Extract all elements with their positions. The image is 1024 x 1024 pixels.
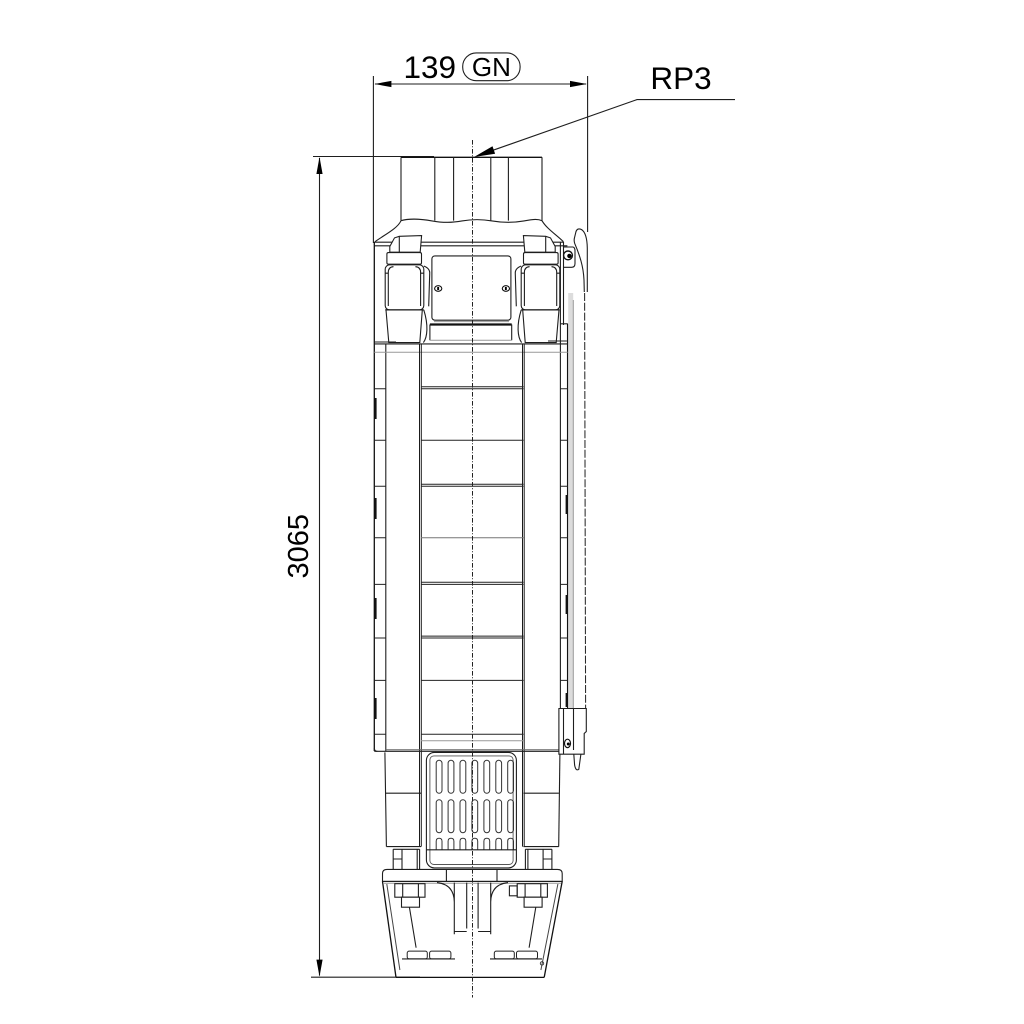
svg-text:3065: 3065: [283, 514, 315, 579]
svg-text:139: 139: [404, 49, 457, 85]
svg-text:GN: GN: [472, 52, 511, 82]
svg-text:RP3: RP3: [650, 60, 711, 96]
